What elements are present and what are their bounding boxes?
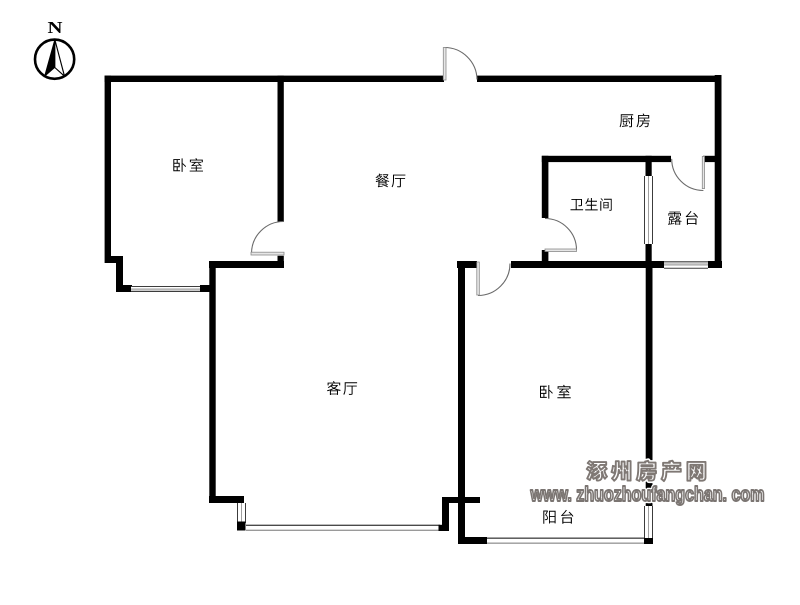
svg-text:N: N bbox=[48, 19, 63, 38]
svg-text:www. zhuozhoufangchan. com: www. zhuozhoufangchan. com bbox=[530, 484, 765, 506]
